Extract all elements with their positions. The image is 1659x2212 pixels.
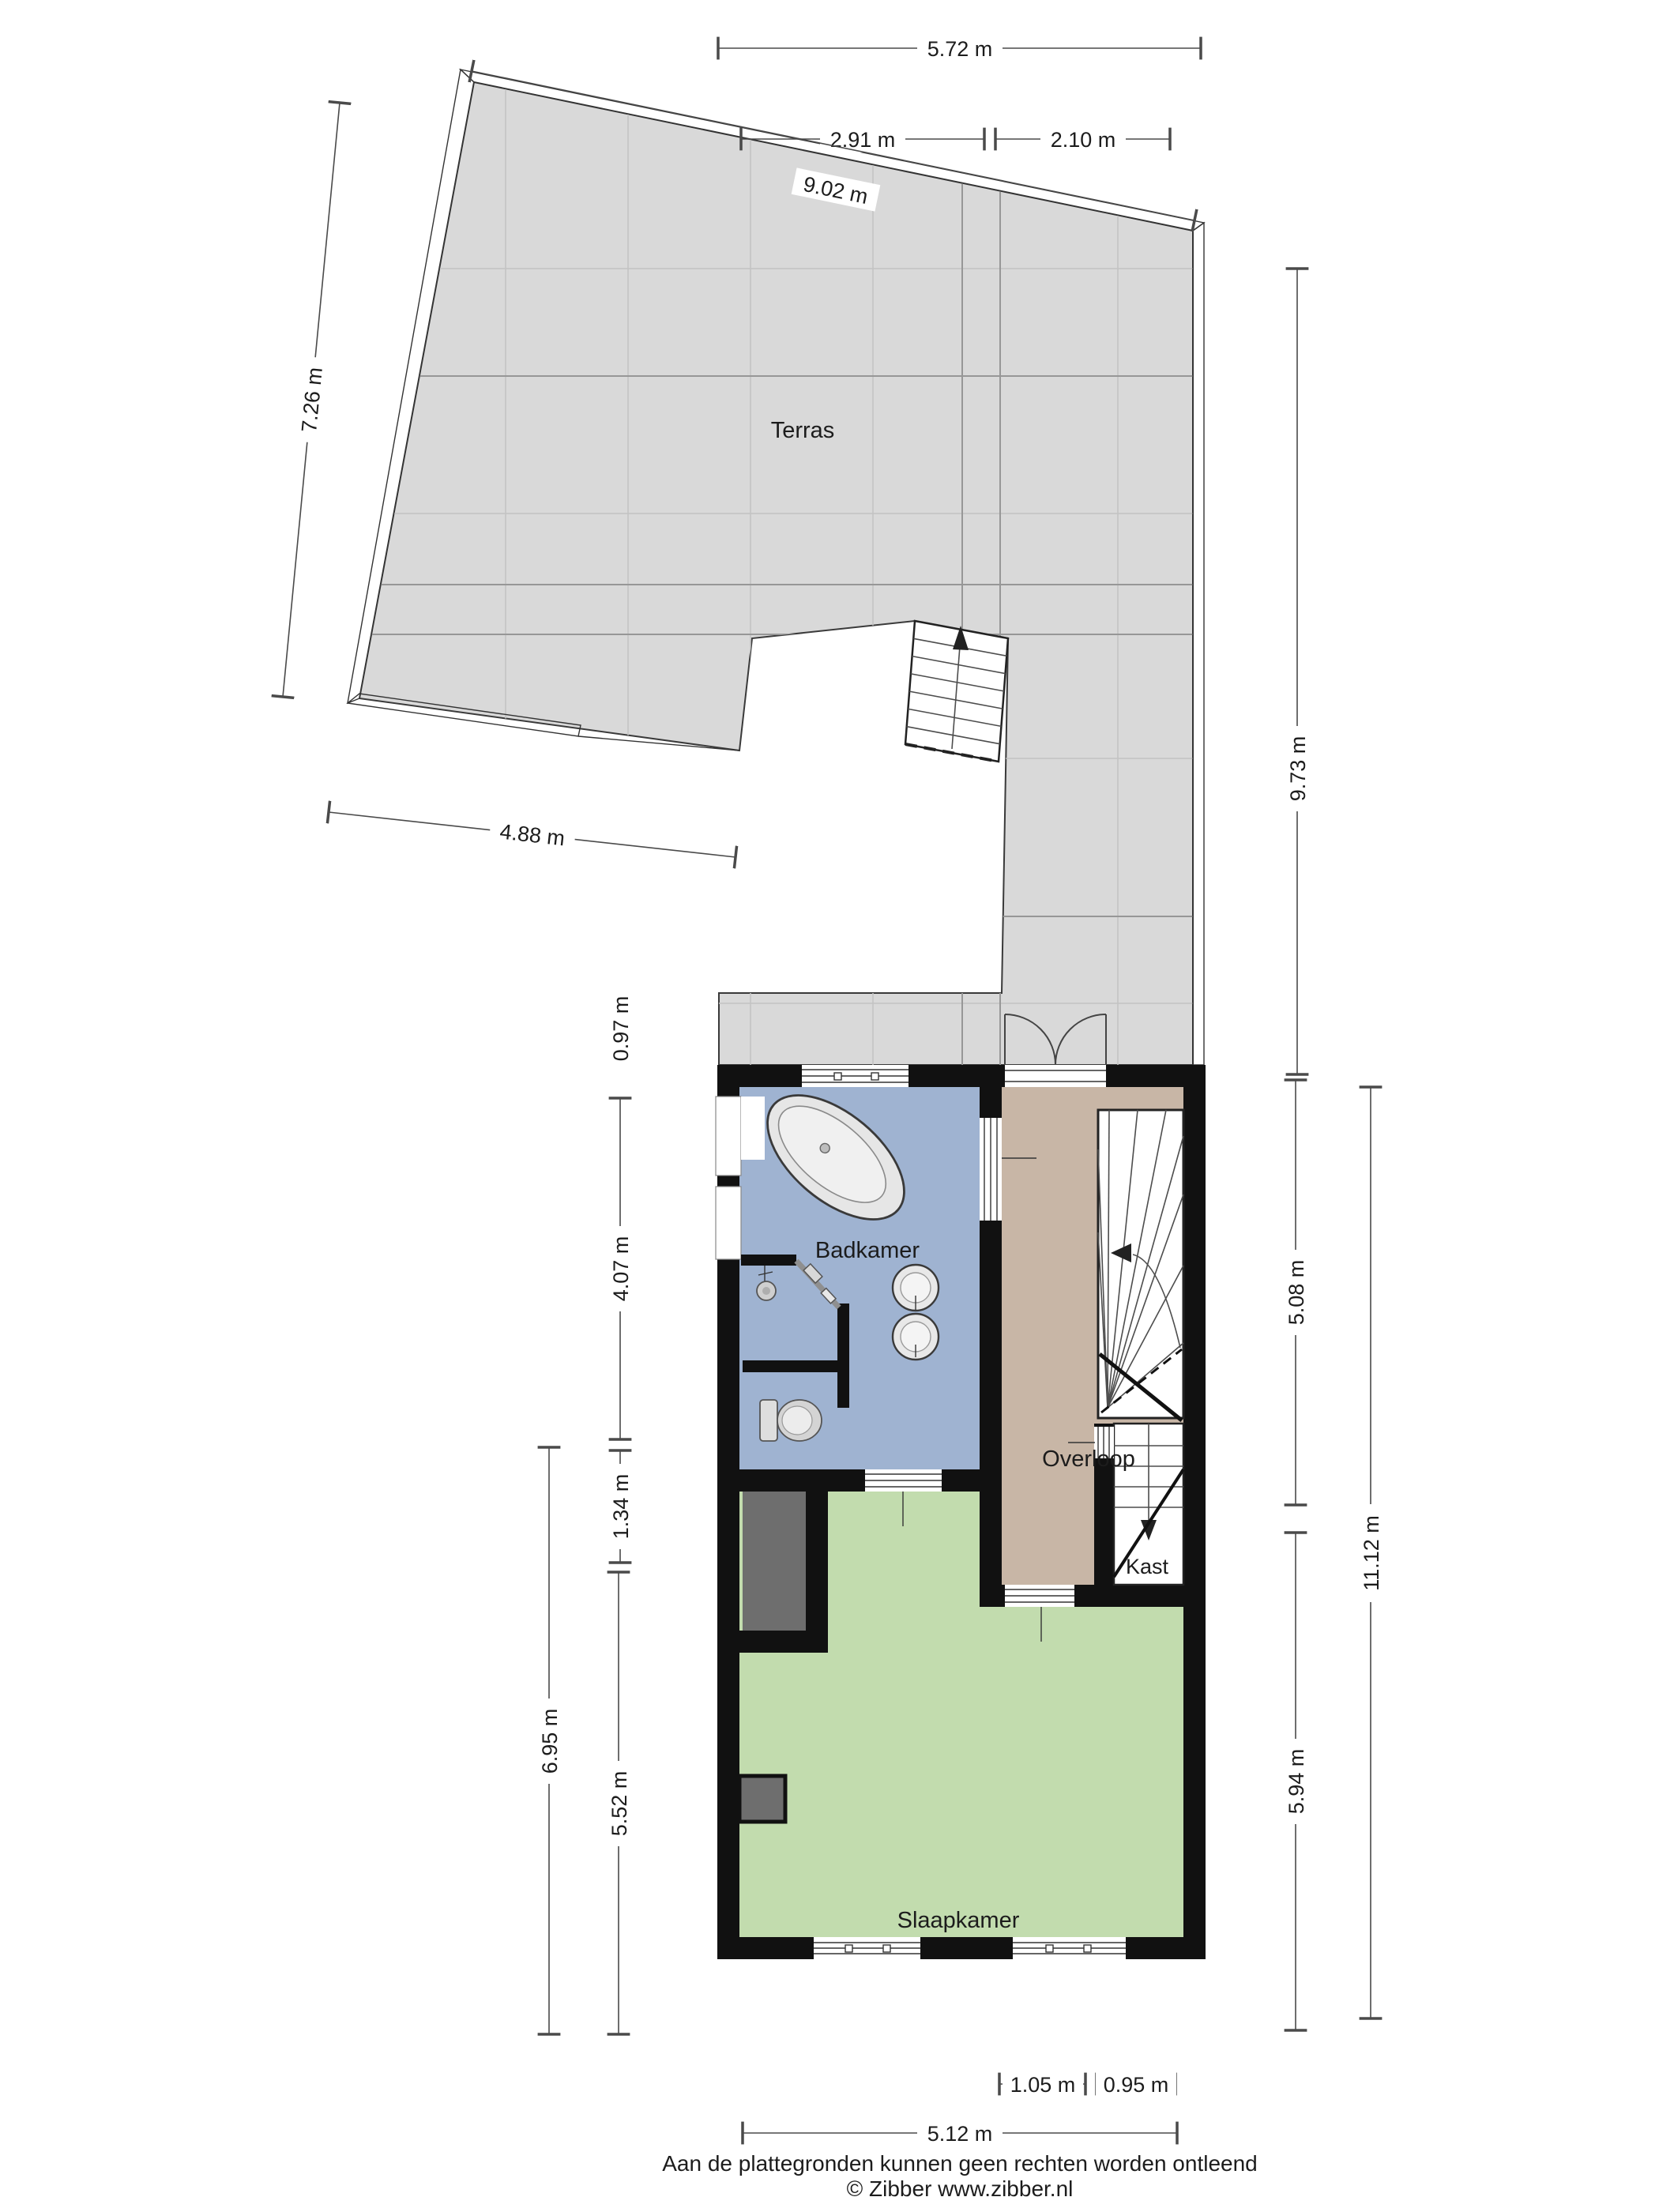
tub-nook xyxy=(741,1097,765,1160)
bedroom-wall-block xyxy=(739,1776,785,1822)
svg-text:5.52 m: 5.52 m xyxy=(608,1771,631,1837)
svg-text:6.95 m: 6.95 m xyxy=(538,1709,562,1774)
svg-text:11.12 m: 11.12 m xyxy=(1360,1515,1383,1591)
svg-text:5.94 m: 5.94 m xyxy=(1285,1749,1308,1815)
svg-text:0.97 m: 0.97 m xyxy=(609,996,633,1062)
svg-text:5.72 m: 5.72 m xyxy=(927,37,993,61)
svg-text:1.34 m: 1.34 m xyxy=(609,1474,633,1540)
dim-window-left: 1.05 m xyxy=(999,2071,1085,2097)
dim-window-right: 0.95 m xyxy=(1096,2071,1176,2097)
dim-landing-height: 5.08 m xyxy=(1282,1080,1309,1505)
svg-text:5.08 m: 5.08 m xyxy=(1285,1260,1308,1326)
closet-label: Kast xyxy=(1126,1555,1169,1578)
building: Kast xyxy=(716,1014,1206,1959)
dim-left-total: 6.95 m xyxy=(536,1447,562,2034)
svg-text:9.73 m: 9.73 m xyxy=(1286,736,1310,802)
terrace: Terras xyxy=(340,63,1209,1066)
svg-text:1.05 m: 1.05 m xyxy=(1010,2073,1076,2097)
terrace-floor xyxy=(359,82,1193,1065)
left-wall-recess xyxy=(716,1187,741,1259)
dim-top-right: 2.10 m xyxy=(995,126,1170,152)
svg-text:4.07 m: 4.07 m xyxy=(609,1236,633,1302)
dim-bottom-total: 5.12 m xyxy=(743,2120,1177,2146)
dim-bathroom-height: 4.07 m xyxy=(607,1098,634,1439)
footer-copyright: © Zibber www.zibber.nl xyxy=(847,2176,1074,2201)
bedroom-niche xyxy=(739,1492,828,1653)
terrace-label: Terras xyxy=(771,418,835,443)
dim-top-total: 5.72 m xyxy=(718,35,1201,62)
footer: Aan de plattegronden kunnen geen rechten… xyxy=(662,2151,1257,2201)
dim-bedroom-left: 5.52 m xyxy=(605,1572,632,2034)
svg-text:2.10 m: 2.10 m xyxy=(1051,128,1116,152)
dim-terrace-bottom: 4.88 m xyxy=(329,812,735,857)
svg-text:0.95 m: 0.95 m xyxy=(1104,2073,1169,2097)
terrace-stairs xyxy=(905,621,1008,762)
footer-disclaimer: Aan de plattegronden kunnen geen rechten… xyxy=(662,2151,1257,2176)
bedroom-label: Slaapkamer xyxy=(897,1908,1020,1933)
dim-strip: 0.97 m xyxy=(607,986,634,1071)
left-wall-recess xyxy=(716,1097,741,1176)
svg-text:5.12 m: 5.12 m xyxy=(927,2122,993,2146)
bathroom-window xyxy=(802,1065,908,1087)
dim-right-total: 11.12 m xyxy=(1357,1087,1384,2018)
bedroom-window-right xyxy=(1013,1937,1126,1959)
floorplan-drawing: Terras xyxy=(0,0,1659,2212)
bedroom-window-left xyxy=(814,1937,920,1959)
dim-left-diagonal: 7.26 m xyxy=(283,103,340,697)
dim-niche-height: 1.34 m xyxy=(607,1450,634,1563)
toilet xyxy=(760,1400,822,1441)
dim-bedroom-right: 5.94 m xyxy=(1282,1533,1309,2030)
landing-label: Overloop xyxy=(1042,1446,1135,1472)
floorplan-page: Terras xyxy=(0,0,1659,2212)
dim-terrace-right: 9.73 m xyxy=(1284,269,1311,1074)
landing-stairs xyxy=(1098,1110,1183,1420)
bathroom-label: Badkamer xyxy=(815,1238,920,1263)
svg-text:2.91 m: 2.91 m xyxy=(830,128,896,152)
